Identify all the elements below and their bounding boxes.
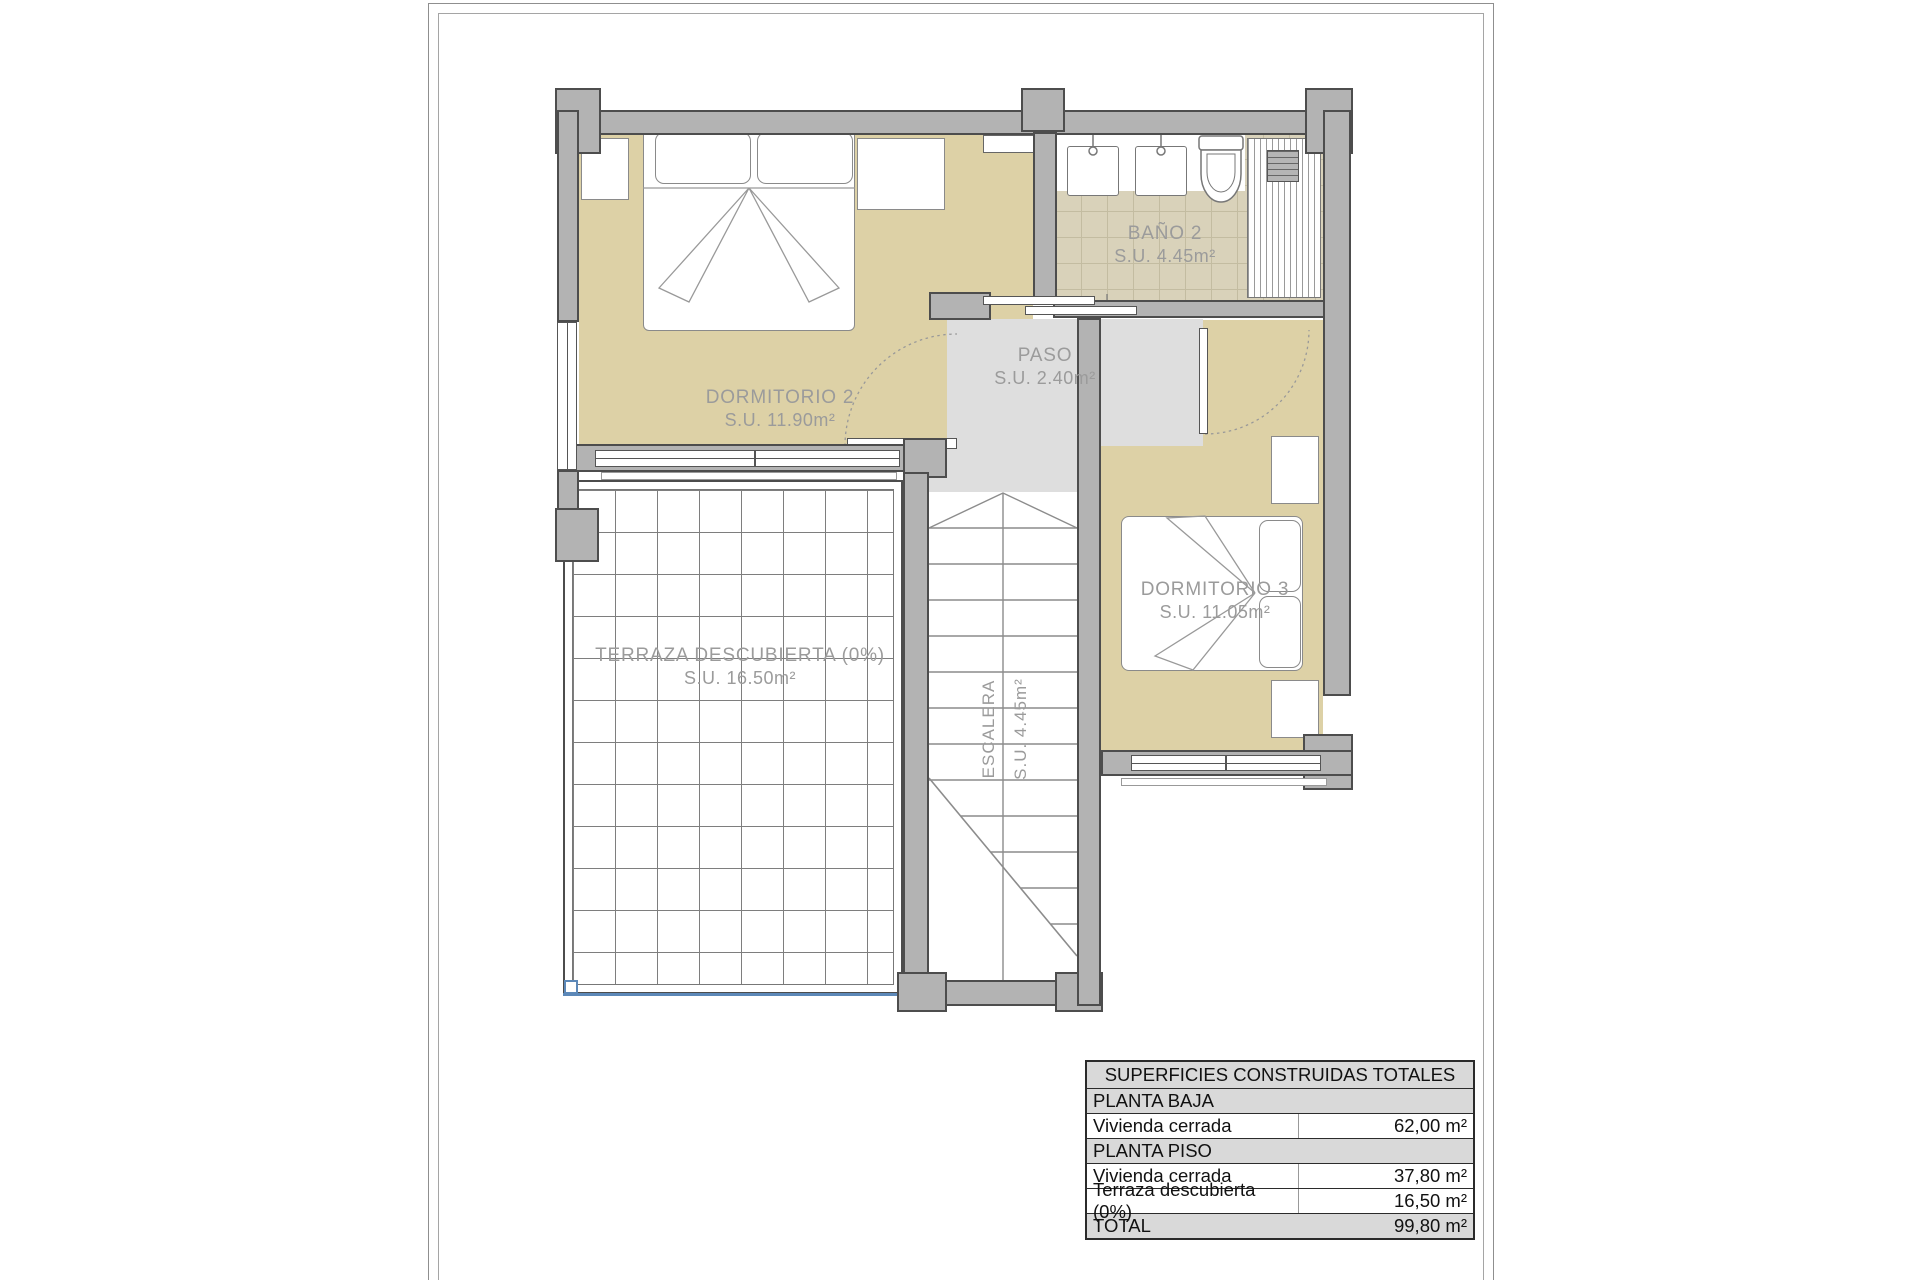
wall-stairs-left xyxy=(903,472,929,1006)
room-name: PASO xyxy=(945,344,1145,367)
wall-stairs-right xyxy=(1077,318,1101,1006)
room-name: TERRAZA DESCUBIERTA (0%) xyxy=(580,644,900,667)
wall-paso-stub xyxy=(929,292,991,320)
table-row-terraza-descubierta: Terraza descubierta (0%) 16,50 m² xyxy=(1087,1188,1473,1213)
row-label: Terraza descubierta (0%) xyxy=(1087,1189,1299,1213)
room-area: S.U. 4.45m² xyxy=(1065,245,1265,268)
wall-right xyxy=(1323,110,1351,696)
pillar-terrace-corner xyxy=(555,508,599,562)
stairs-steps xyxy=(929,493,1077,980)
label-escalera-area: S.U. 4.45m² xyxy=(1011,644,1029,814)
row-value: 99,80 m² xyxy=(1299,1215,1473,1237)
pillar-top-middle xyxy=(1021,88,1065,132)
areas-table-title: SUPERFICIES CONSTRUIDAS TOTALES xyxy=(1087,1062,1473,1088)
window-dormitorio3-bottom xyxy=(1131,755,1226,771)
dormitorio3-door-arc xyxy=(1205,330,1309,434)
row-label: TOTAL xyxy=(1087,1215,1299,1237)
table-row-planta-piso: PLANTA PISO xyxy=(1087,1138,1473,1163)
table-row-total: TOTAL 99,80 m² xyxy=(1087,1213,1473,1238)
pillar-stairs-bottom-left xyxy=(897,972,947,1012)
floor-plan: DORMITORIO 2 S.U. 11.90m² BAÑO 2 S.U. 4.… xyxy=(555,88,1355,1038)
window-dormitorio3-bottom-2 xyxy=(1226,755,1321,771)
room-area: S.U. 11.90m² xyxy=(630,409,930,432)
label-terraza: TERRAZA DESCUBIERTA (0%) S.U. 16.50m² xyxy=(580,644,900,690)
bano2-sliding-door-panel-2 xyxy=(1025,306,1137,315)
row-value: 16,50 m² xyxy=(1299,1190,1473,1212)
window-dormitorio2-bottom xyxy=(595,450,755,467)
label-paso: PASO S.U. 2.40m² xyxy=(945,344,1145,390)
room-name: DORMITORIO 3 xyxy=(1115,578,1315,601)
row-value: 62,00 m² xyxy=(1299,1115,1473,1137)
window-dormitorio2-bottom-2 xyxy=(755,450,900,467)
row-label: Vivienda cerrada xyxy=(1087,1114,1299,1138)
window-sill-dormitorio3 xyxy=(1121,778,1327,786)
room-area: S.U. 16.50m² xyxy=(580,667,900,690)
bano2-toilet xyxy=(1199,136,1243,202)
table-row-vivienda-cerrada-baja: Vivienda cerrada 62,00 m² xyxy=(1087,1113,1473,1138)
window-dormitorio2-left xyxy=(557,322,577,470)
room-area: S.U. 11.05m² xyxy=(1115,601,1315,624)
label-escalera-name: ESCALERA xyxy=(979,644,997,814)
label-dormitorio3: DORMITORIO 3 S.U. 11.05m² xyxy=(1115,578,1315,624)
table-row-planta-baja: PLANTA BAJA xyxy=(1087,1088,1473,1113)
plan-sheet: DORMITORIO 2 S.U. 11.90m² BAÑO 2 S.U. 4.… xyxy=(0,0,1920,1280)
wall-bano2-left xyxy=(1033,132,1057,298)
label-dormitorio2: DORMITORIO 2 S.U. 11.90m² xyxy=(630,386,930,432)
areas-table: SUPERFICIES CONSTRUIDAS TOTALES PLANTA B… xyxy=(1085,1060,1475,1240)
room-name: BAÑO 2 xyxy=(1065,222,1265,245)
wall-top xyxy=(559,110,1351,135)
room-name: DORMITORIO 2 xyxy=(630,386,930,409)
window-sill-terrace xyxy=(601,472,897,480)
dormitorio3-door-leaf xyxy=(1199,328,1208,434)
row-value: 37,80 m² xyxy=(1299,1165,1473,1187)
label-bano2: BAÑO 2 S.U. 4.45m² xyxy=(1065,222,1265,268)
room-area: S.U. 2.40m² xyxy=(945,367,1145,390)
bano2-faucets xyxy=(1089,132,1165,155)
bano2-sliding-door-panel-1 xyxy=(983,296,1095,305)
wall-left-top xyxy=(557,110,579,322)
dormitorio2-bed-folds xyxy=(643,188,855,302)
